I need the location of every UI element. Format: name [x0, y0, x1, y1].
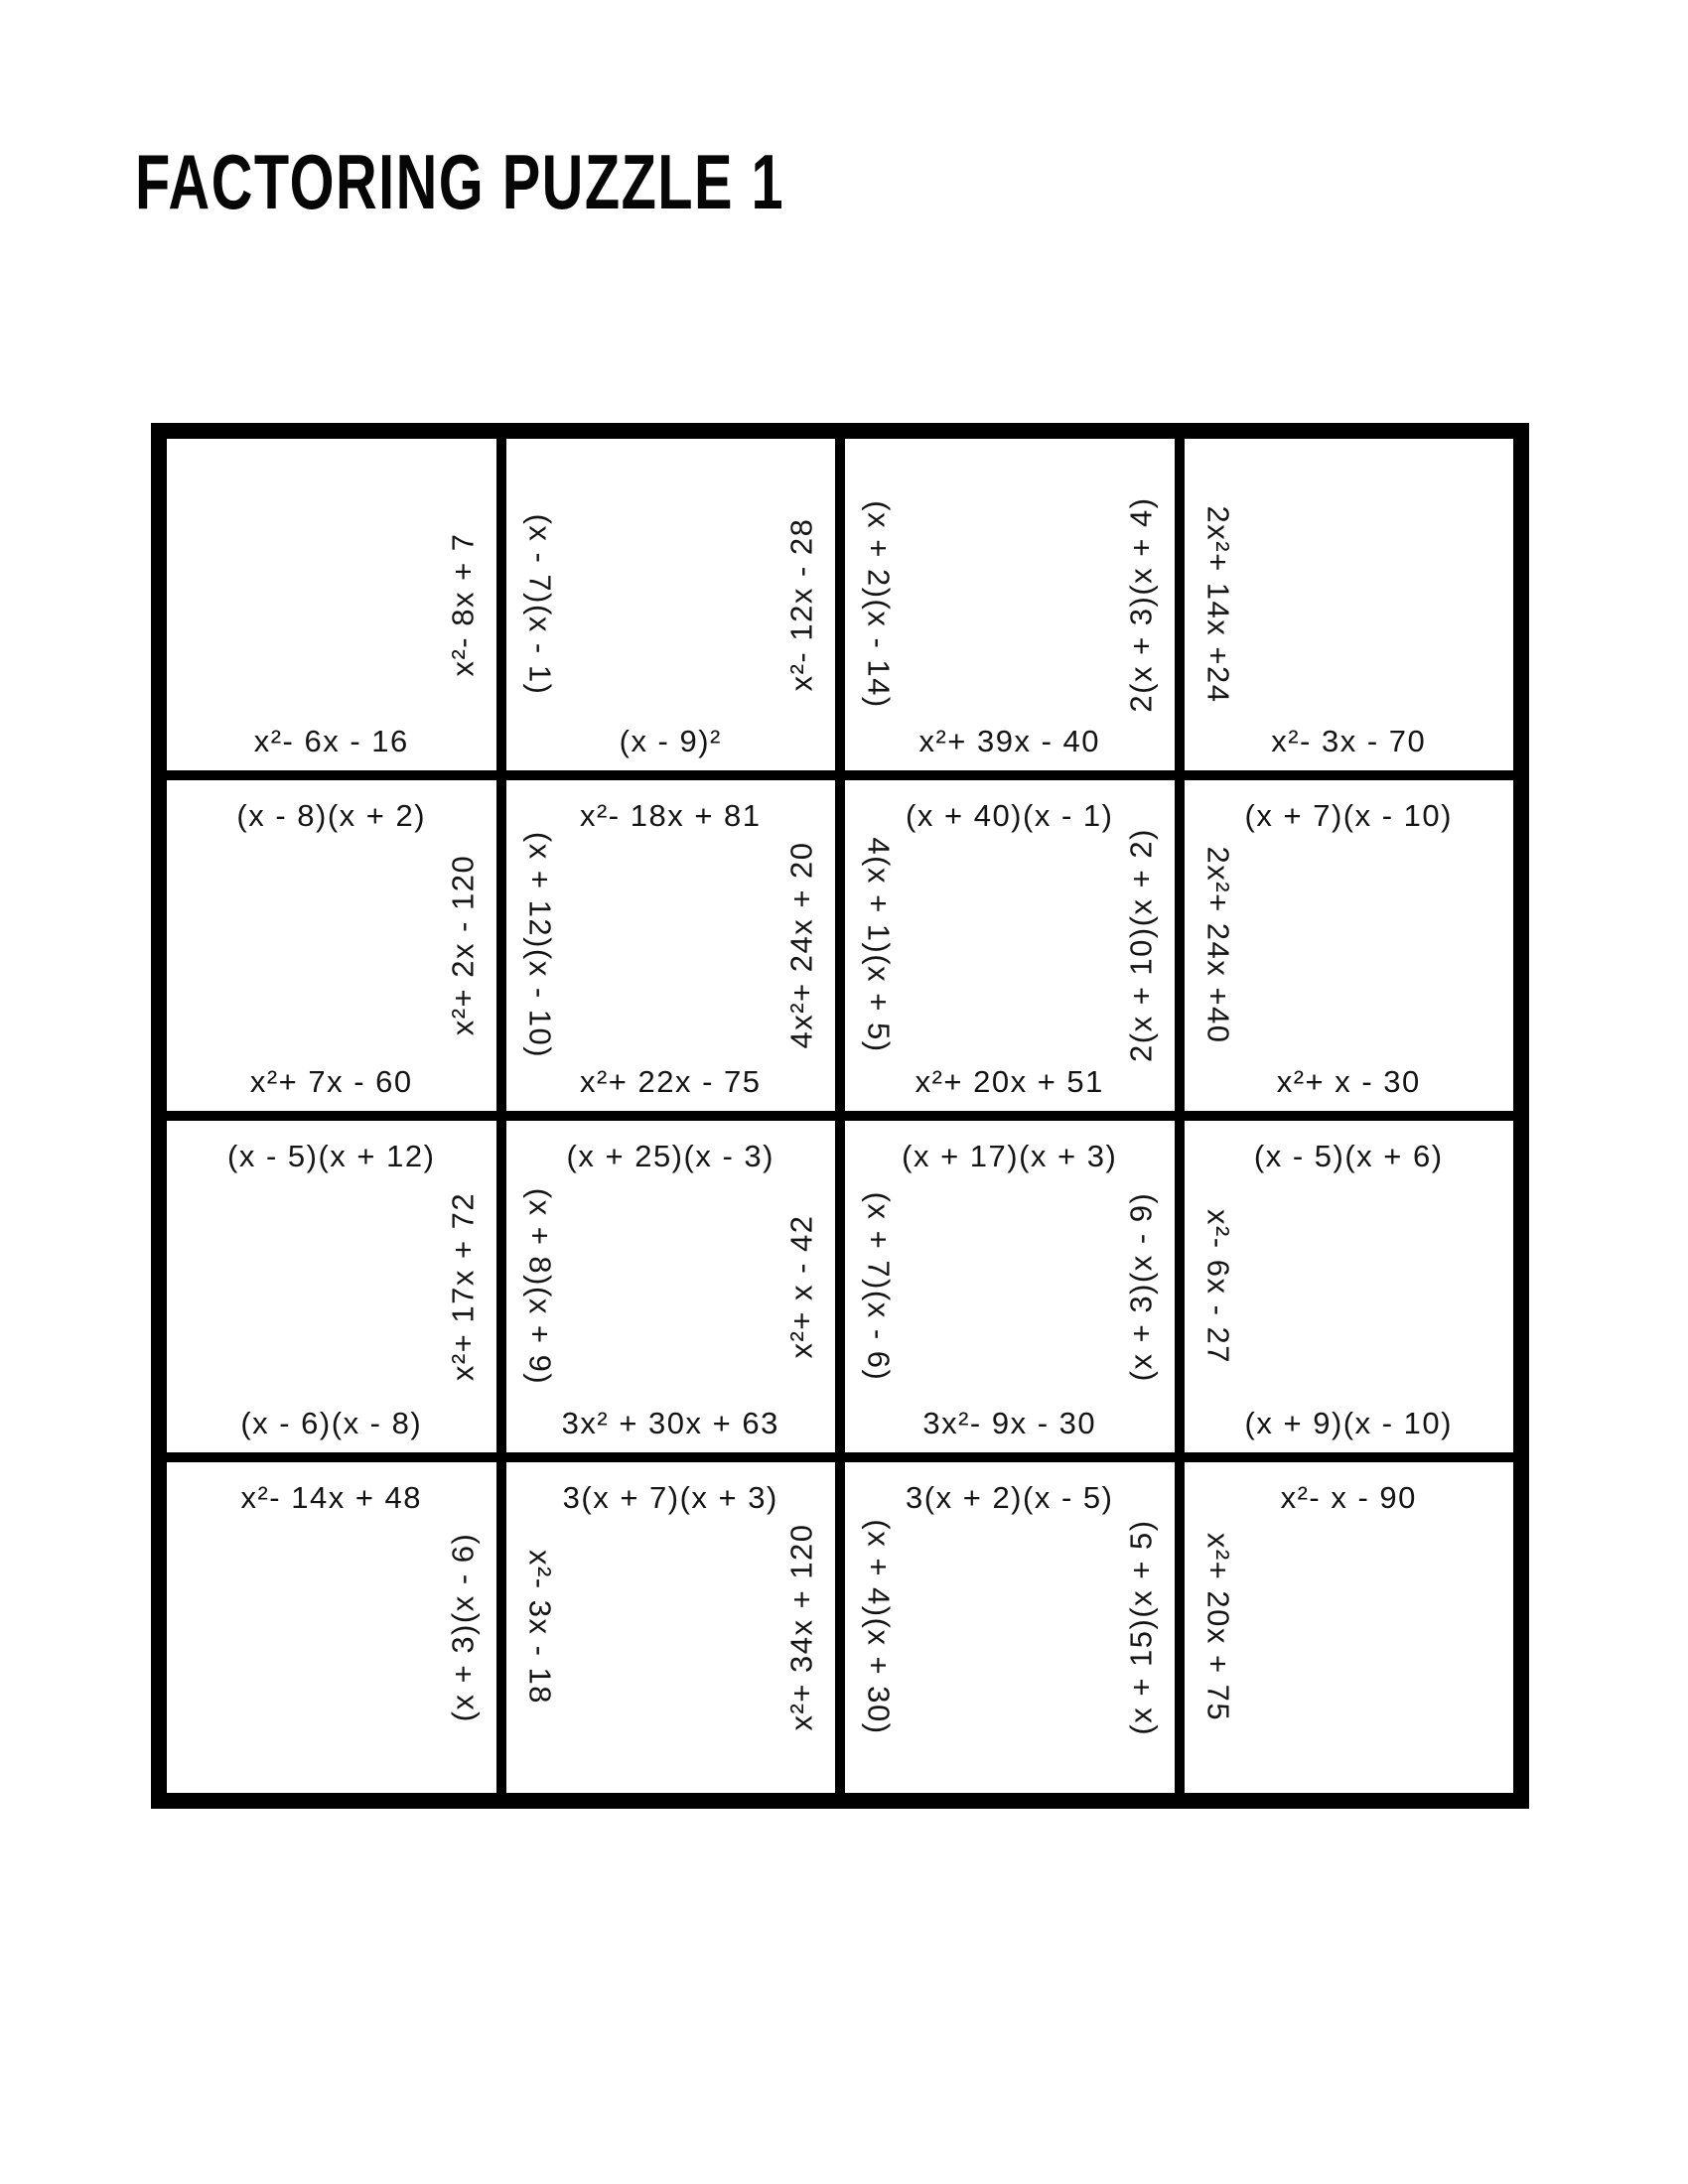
puzzle-piece-r3c2: (x + 25)(x - 3) (x + 8)(x + 9) x²+ x - 4… — [506, 1121, 836, 1452]
expression-right: (x + 3)(x - 6) — [447, 1533, 478, 1722]
puzzle-piece-r1c2: (x - 7)(x - 1) x²- 12x - 28 (x - 9)² — [506, 439, 836, 770]
expression-top: x²- 14x + 48 — [240, 1482, 422, 1513]
expression-bottom: x²+ 22x - 75 — [580, 1066, 762, 1097]
puzzle-piece-r1c1: x²- 8x + 7 x²- 6x - 16 — [167, 439, 496, 770]
puzzle-piece-r3c4: (x - 5)(x + 6) x²- 6x - 27 (x + 9)(x - 1… — [1185, 1121, 1514, 1452]
expression-left: (x + 4)(x + 30) — [864, 1520, 895, 1735]
expression-top: (x + 17)(x + 3) — [902, 1141, 1117, 1171]
expression-bottom: (x + 9)(x - 10) — [1245, 1408, 1453, 1438]
expression-left: x²- 3x - 18 — [524, 1550, 555, 1705]
expression-right: 2(x + 3)(x + 4) — [1125, 496, 1156, 712]
puzzle-piece-r2c2: x²- 18x + 81 (x + 12)(x - 10) 4x²+ 24x +… — [506, 780, 836, 1112]
puzzle-piece-r4c4: x²- x - 90 x²+ 20x + 75 — [1185, 1462, 1514, 1794]
expression-left: x²- 6x - 27 — [1202, 1209, 1233, 1364]
page-title: FACTORING PUZZLE 1 — [135, 137, 784, 227]
expression-top: (x + 7)(x - 10) — [1245, 800, 1453, 831]
expression-right: (x + 15)(x + 5) — [1125, 1520, 1156, 1735]
expression-right: x²- 12x - 28 — [786, 517, 817, 691]
puzzle-piece-r4c2: 3(x + 7)(x + 3) x²- 3x - 18 x²+ 34x + 12… — [506, 1462, 836, 1794]
expression-bottom: (x - 6)(x - 8) — [240, 1408, 422, 1438]
expression-left: 2x²+ 24x +40 — [1202, 847, 1233, 1044]
expression-left: (x + 8)(x + 9) — [524, 1188, 555, 1385]
expression-right: x²- 8x + 7 — [447, 532, 478, 676]
puzzle-piece-r3c1: (x - 5)(x + 12) x²+ 17x + 72 (x - 6)(x -… — [167, 1121, 496, 1452]
expression-right: (x + 3)(x - 9) — [1125, 1191, 1156, 1381]
puzzle-piece-r4c3: 3(x + 2)(x - 5) (x + 4)(x + 30) (x + 15)… — [845, 1462, 1175, 1794]
puzzle-piece-r4c1: x²- 14x + 48 (x + 3)(x - 6) — [167, 1462, 496, 1794]
expression-top: (x - 5)(x + 12) — [227, 1141, 435, 1171]
expression-bottom: x²- 3x - 70 — [1271, 726, 1426, 756]
expression-bottom: x²- 6x - 16 — [254, 726, 409, 756]
expression-top: x²- x - 90 — [1281, 1482, 1417, 1513]
expression-left: (x - 7)(x - 1) — [524, 513, 555, 695]
expression-bottom: 3x²- 9x - 30 — [922, 1408, 1096, 1438]
expression-left: (x + 12)(x - 10) — [524, 832, 555, 1058]
puzzle-piece-r3c3: (x + 17)(x + 3) (x + 7)(x - 6) (x + 3)(x… — [845, 1121, 1175, 1452]
expression-top: x²- 18x + 81 — [580, 800, 762, 831]
expression-bottom: x²+ 7x - 60 — [250, 1066, 413, 1097]
puzzle-piece-r1c3: (x + 2)(x - 14) 2(x + 3)(x + 4) x²+ 39x … — [845, 439, 1175, 770]
expression-left: x²+ 20x + 75 — [1202, 1533, 1233, 1721]
expression-right: 4x²+ 24x + 20 — [786, 842, 817, 1049]
expression-left: (x + 7)(x - 6) — [864, 1191, 895, 1381]
expression-bottom: (x - 9)² — [620, 726, 722, 756]
expression-top: (x + 25)(x - 3) — [567, 1141, 774, 1171]
expression-bottom: x²+ 39x - 40 — [918, 726, 1100, 756]
expression-bottom: x²+ x - 30 — [1277, 1066, 1421, 1097]
factoring-puzzle-grid: x²- 8x + 7 x²- 6x - 16 (x - 7)(x - 1) x²… — [151, 423, 1529, 1809]
expression-top: (x - 5)(x + 6) — [1254, 1141, 1444, 1171]
expression-right: 2(x + 10)(x + 2) — [1125, 828, 1156, 1062]
puzzle-piece-r2c1: (x - 8)(x + 2) x²+ 2x - 120 x²+ 7x - 60 — [167, 780, 496, 1112]
expression-right: x²+ 2x - 120 — [447, 855, 478, 1036]
expression-top: (x + 40)(x - 1) — [906, 800, 1113, 831]
puzzle-piece-r2c4: (x + 7)(x - 10) 2x²+ 24x +40 x²+ x - 30 — [1185, 780, 1514, 1112]
puzzle-piece-r2c3: (x + 40)(x - 1) 4(x + 1)(x + 5) 2(x + 10… — [845, 780, 1175, 1112]
expression-bottom: 3x² + 30x + 63 — [562, 1408, 779, 1438]
expression-bottom: x²+ 20x + 51 — [915, 1066, 1104, 1097]
expression-top: 3(x + 2)(x - 5) — [906, 1482, 1113, 1513]
expression-right: x²+ 34x + 120 — [786, 1524, 817, 1731]
expression-left: (x + 2)(x - 14) — [864, 500, 895, 708]
expression-left: 2x²+ 14x +24 — [1202, 505, 1233, 703]
puzzle-piece-r1c4: 2x²+ 14x +24 x²- 3x - 70 — [1185, 439, 1514, 770]
expression-right: x²+ x - 42 — [786, 1214, 817, 1358]
expression-top: 3(x + 7)(x + 3) — [563, 1482, 778, 1513]
expression-left: 4(x + 1)(x + 5) — [864, 838, 895, 1053]
expression-right: x²+ 17x + 72 — [447, 1192, 478, 1381]
expression-top: (x - 8)(x + 2) — [236, 800, 426, 831]
